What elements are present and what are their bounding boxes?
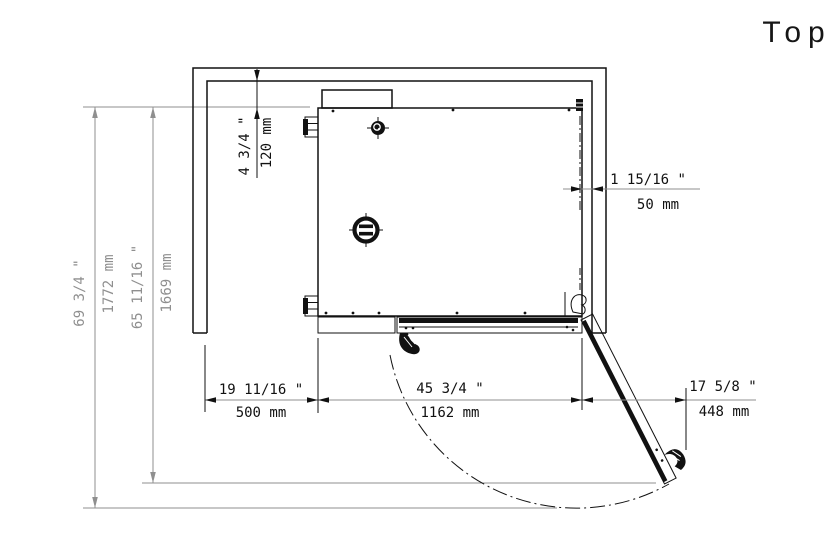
dim-depth-total-mm: 1772 mm [101,254,117,313]
pipe-fitting-large [349,213,383,247]
dim-clearance-left-inch: 19 11/16 " [219,382,303,398]
dim-right-gap: 1 15/16 " 50 mm [563,172,700,213]
dim-depth-door-open-inch: 65 11/16 " [130,245,146,329]
screw-dots [325,109,571,315]
dim-door-projection-mm: 448 mm [699,404,750,420]
dim-top-gap: 4 3/4 " 120 mm [237,69,275,178]
dim-depth-door-open: 65 11/16 " 1669 mm [130,107,175,483]
dim-top-gap-inch: 4 3/4 " [237,116,253,175]
top-vent-box [322,90,392,108]
dim-right-gap-inch: 1 15/16 " [610,172,686,188]
door-closed-position [397,292,582,354]
view-title: Top [762,16,831,49]
dim-unit-width-inch: 45 3/4 " [416,381,483,397]
dim-unit-width: 45 3/4 " 1162 mm [416,381,483,421]
oven-body [303,90,586,354]
dim-door-projection-inch: 17 5/8 " [689,379,756,395]
dim-depth-door-open-mm: 1669 mm [159,253,175,312]
dim-unit-width-mm: 1162 mm [420,405,479,421]
technical-drawing-top-view: 69 3/4 " 1772 mm 65 11/16 " 1669 mm [0,0,838,556]
dim-depth-total: 69 3/4 " 1772 mm [72,107,117,508]
drawing-canvas: 69 3/4 " 1772 mm 65 11/16 " 1669 mm [0,0,838,556]
door-swing-arc [390,355,669,508]
dim-top-gap-mm: 120 mm [259,118,275,169]
pipe-fitting-small [367,117,389,139]
dim-clearance-left: 19 11/16 " 500 mm [219,382,303,421]
hinge-bottom [303,296,318,316]
front-panel-left [318,317,395,333]
dim-right-gap-mm: 50 mm [637,197,679,213]
door-handle-open [664,446,689,474]
door-hinge-bracket [571,295,586,314]
dim-clearance-left-mm: 500 mm [236,405,287,421]
hinge-top [303,117,318,137]
dim-bottom-chain: 19 11/16 " 500 mm 45 3/4 " 1162 mm 17 5/… [205,338,757,450]
dim-depth-total-inch: 69 3/4 " [72,259,88,326]
